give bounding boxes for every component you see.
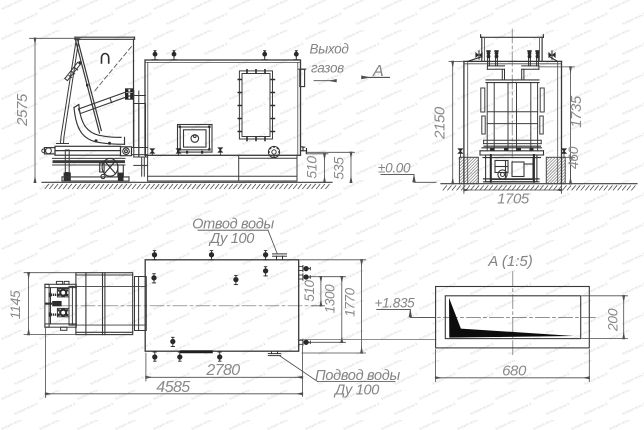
svg-text:A (1:5): A (1:5) [487,253,532,270]
svg-text:1735: 1735 [568,95,585,128]
svg-text:2575: 2575 [14,93,31,127]
svg-text:1300: 1300 [323,284,338,313]
svg-text:±0.00: ±0.00 [378,161,411,176]
svg-text:460: 460 [565,146,581,169]
svg-text:2780: 2780 [205,362,240,379]
svg-text:A: A [372,63,384,80]
svg-text:Выход: Выход [310,42,350,57]
svg-text:510: 510 [302,279,317,301]
svg-text:газов: газов [311,61,344,76]
svg-text:Ду 100: Ду 100 [208,231,254,247]
svg-text:1705: 1705 [497,191,530,208]
svg-text:1770: 1770 [343,287,358,316]
svg-text:+1.835: +1.835 [375,296,416,311]
svg-text:4585: 4585 [156,379,190,396]
svg-text:Ду 100: Ду 100 [333,383,379,399]
svg-text:535: 535 [331,157,347,180]
svg-text:680: 680 [502,363,527,380]
svg-text:2150: 2150 [432,106,449,140]
svg-text:510: 510 [304,156,320,179]
svg-text:1145: 1145 [7,290,23,319]
svg-text:200: 200 [605,308,621,332]
